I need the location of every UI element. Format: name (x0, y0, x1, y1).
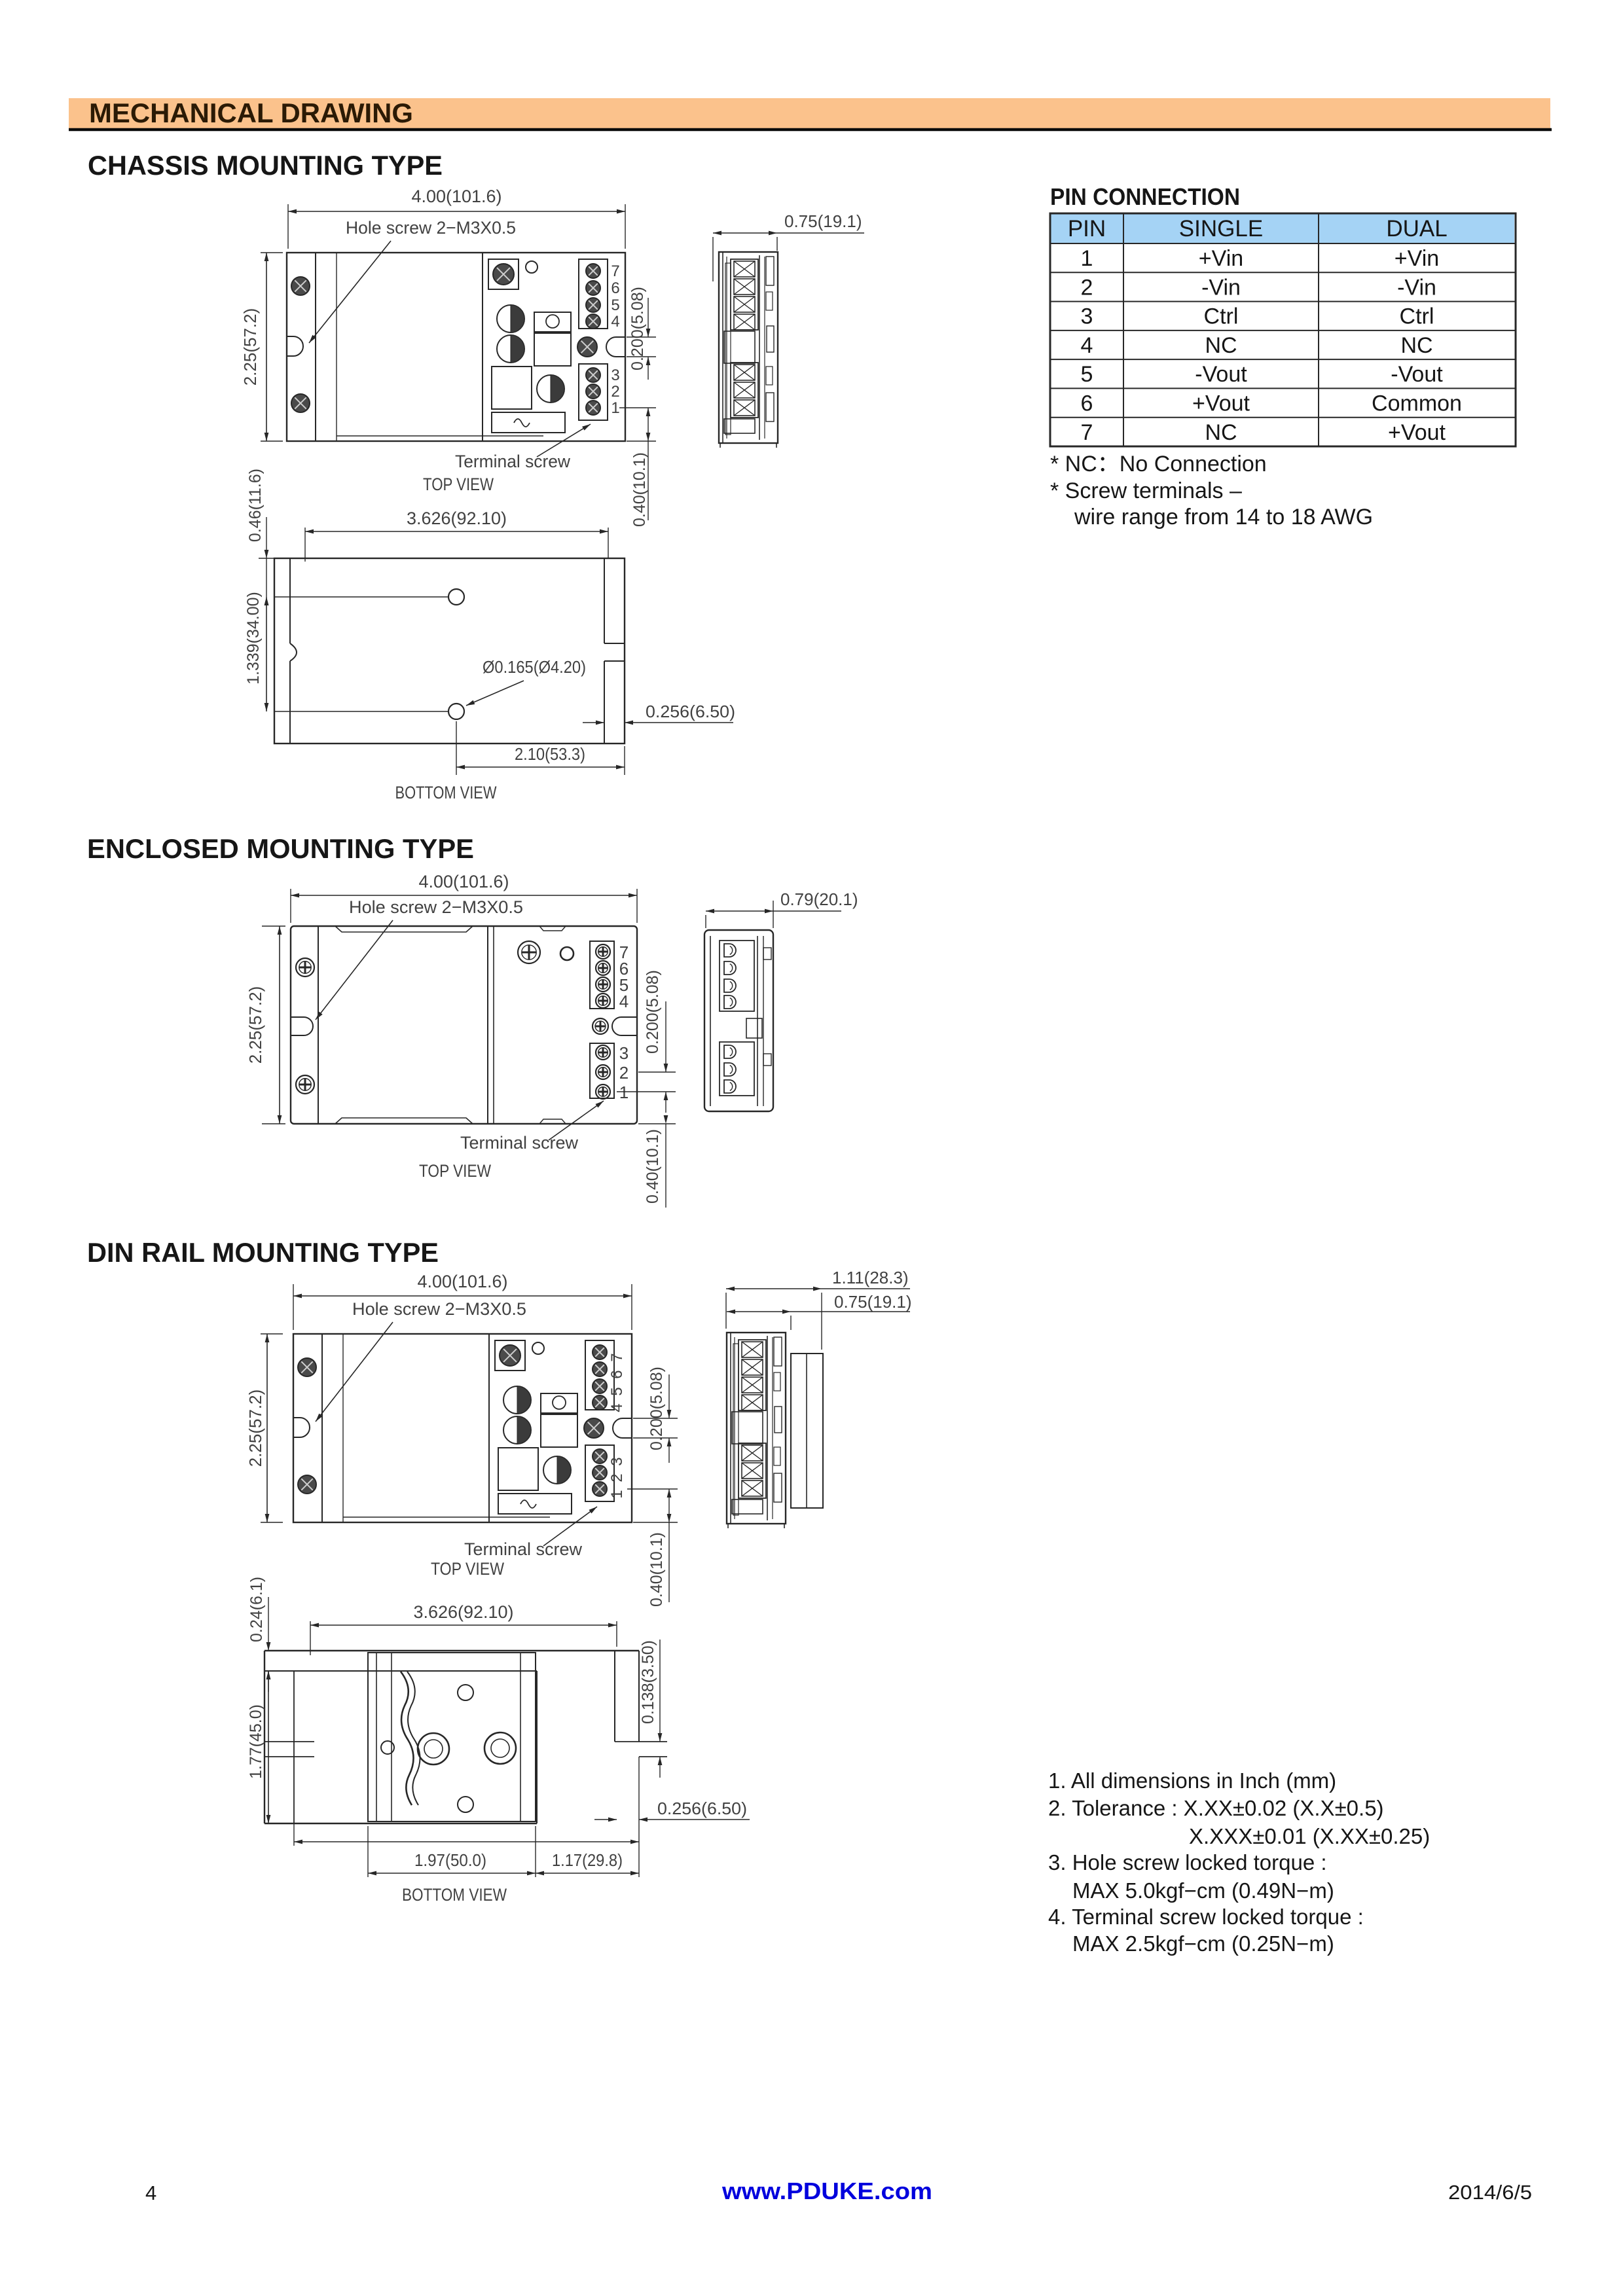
svg-text:0.40(10.1): 0.40(10.1) (630, 452, 649, 527)
svg-text:1.77(45.0): 1.77(45.0) (247, 1704, 265, 1779)
svg-text:1.17(29.8): 1.17(29.8) (552, 1850, 623, 1870)
svg-text:NC: NC (1205, 333, 1237, 358)
svg-text:-Vout: -Vout (1195, 362, 1247, 387)
svg-text:3. Hole screw locked torque :: 3. Hole screw locked torque : (1048, 1850, 1327, 1874)
svg-text:* NC：No Connection: * NC：No Connection (1050, 452, 1267, 476)
svg-text:3.626(92.10): 3.626(92.10) (407, 509, 507, 528)
svg-text:+Vin: +Vin (1199, 246, 1243, 271)
svg-text:3: 3 (608, 1457, 626, 1465)
svg-text:Common: Common (1372, 391, 1462, 416)
svg-text:3.626(92.10): 3.626(92.10) (413, 1602, 513, 1622)
svg-text:X.XXX±0.01 (X.XX±0.25): X.XXX±0.01 (X.XX±0.25) (1189, 1824, 1430, 1848)
svg-text:-Vin: -Vin (1201, 275, 1241, 300)
svg-text:4. Terminal screw locked torqu: 4. Terminal screw locked torque : (1048, 1905, 1364, 1929)
svg-text:1.97(50.0): 1.97(50.0) (414, 1850, 486, 1870)
svg-text:0.138(3.50): 0.138(3.50) (639, 1640, 657, 1724)
svg-text:Hole screw 2−M3X0.5: Hole screw 2−M3X0.5 (349, 897, 523, 917)
svg-text:+Vin: +Vin (1395, 246, 1439, 271)
svg-text:0.40(10.1): 0.40(10.1) (647, 1532, 666, 1607)
svg-text:* Screw terminals –: * Screw terminals – (1050, 478, 1242, 503)
svg-text:1. All dimensions in Inch (mm): 1. All dimensions in Inch (mm) (1048, 1768, 1336, 1793)
svg-text:MAX 2.5kgf−cm (0.25N−m): MAX 2.5kgf−cm (0.25N−m) (1072, 1931, 1334, 1956)
svg-text:2: 2 (611, 383, 619, 401)
svg-text:Ctrl: Ctrl (1204, 304, 1239, 329)
svg-text:-Vout: -Vout (1391, 362, 1443, 387)
svg-text:2: 2 (619, 1063, 629, 1083)
svg-text:0.75(19.1): 0.75(19.1) (784, 211, 862, 231)
svg-text:2014/6/5: 2014/6/5 (1448, 2181, 1532, 2204)
svg-text:4.00(101.6): 4.00(101.6) (417, 1272, 507, 1291)
svg-text:0.256(6.50): 0.256(6.50) (646, 702, 735, 721)
svg-text:0.75(19.1): 0.75(19.1) (834, 1292, 912, 1312)
svg-text:SINGLE: SINGLE (1179, 216, 1263, 242)
svg-text:2: 2 (608, 1473, 626, 1482)
svg-text:1: 1 (608, 1490, 626, 1498)
svg-text:5: 5 (608, 1387, 626, 1395)
svg-text:www.PDUKE.com: www.PDUKE.com (721, 2178, 932, 2204)
svg-text:MECHANICAL DRAWING: MECHANICAL DRAWING (89, 98, 413, 128)
svg-text:4: 4 (619, 992, 629, 1011)
svg-text:TOP VIEW: TOP VIEW (423, 475, 494, 494)
svg-text:Terminal screw: Terminal screw (464, 1539, 582, 1559)
svg-text:ENCLOSED MOUNTING TYPE: ENCLOSED MOUNTING TYPE (87, 833, 474, 864)
svg-text:0.200(5.08): 0.200(5.08) (647, 1367, 666, 1450)
svg-text:2.10(53.3): 2.10(53.3) (515, 744, 585, 764)
svg-text:DIN RAIL MOUNTING TYPE: DIN RAIL MOUNTING TYPE (87, 1237, 439, 1268)
svg-text:7: 7 (611, 262, 619, 280)
svg-text:BOTTOM VIEW: BOTTOM VIEW (395, 783, 497, 802)
svg-text:0.200(5.08): 0.200(5.08) (629, 287, 647, 370)
svg-text:BOTTOM VIEW: BOTTOM VIEW (402, 1885, 507, 1905)
svg-text:Ctrl: Ctrl (1400, 304, 1434, 329)
svg-text:7: 7 (1081, 420, 1093, 445)
svg-text:0.79(20.1): 0.79(20.1) (780, 889, 858, 909)
svg-text:6: 6 (1081, 391, 1093, 416)
svg-text:TOP VIEW: TOP VIEW (419, 1161, 491, 1181)
svg-text:MAX 5.0kgf−cm (0.49N−m): MAX 5.0kgf−cm (0.49N−m) (1072, 1878, 1334, 1903)
svg-text:Ø0.165(Ø4.20): Ø0.165(Ø4.20) (483, 657, 586, 677)
svg-text:4: 4 (608, 1403, 626, 1412)
svg-text:3: 3 (1081, 304, 1093, 329)
svg-text:wire range from 14 to 18 AWG: wire range from 14 to 18 AWG (1074, 505, 1373, 529)
svg-text:1.339(34.00): 1.339(34.00) (244, 592, 263, 685)
svg-text:4.00(101.6): 4.00(101.6) (418, 872, 509, 891)
svg-text:0.46(11.6): 0.46(11.6) (246, 469, 264, 542)
svg-text:Hole screw 2−M3X0.5: Hole screw 2−M3X0.5 (346, 218, 516, 238)
svg-text:5: 5 (1081, 362, 1093, 387)
svg-text:6: 6 (611, 279, 619, 297)
svg-text:1: 1 (1081, 246, 1093, 271)
svg-text:4: 4 (145, 2181, 156, 2204)
svg-text:NC: NC (1400, 333, 1432, 358)
svg-text:DUAL: DUAL (1386, 216, 1447, 242)
svg-text:4.00(101.6): 4.00(101.6) (411, 187, 501, 206)
svg-text:7: 7 (608, 1353, 626, 1361)
svg-text:0.200(5.08): 0.200(5.08) (644, 970, 662, 1054)
svg-text:TOP VIEW: TOP VIEW (431, 1559, 504, 1579)
svg-text:+Vout: +Vout (1388, 420, 1446, 445)
svg-text:6: 6 (608, 1370, 626, 1378)
svg-text:1.11(28.3): 1.11(28.3) (832, 1268, 909, 1287)
svg-text:4: 4 (611, 313, 619, 331)
svg-text:Terminal screw: Terminal screw (455, 452, 570, 471)
svg-text:0.256(6.50): 0.256(6.50) (657, 1799, 747, 1818)
svg-text:Hole screw 2−M3X0.5: Hole screw 2−M3X0.5 (352, 1299, 526, 1319)
svg-text:PIN CONNECTION: PIN CONNECTION (1050, 183, 1240, 210)
svg-text:2. Tolerance : X.XX±0.02 (X.X±: 2. Tolerance : X.XX±0.02 (X.X±0.5) (1048, 1796, 1384, 1820)
svg-text:Terminal screw: Terminal screw (460, 1133, 578, 1153)
svg-text:2.25(57.2): 2.25(57.2) (246, 1390, 265, 1467)
svg-text:5: 5 (611, 296, 619, 314)
svg-text:NC: NC (1205, 420, 1237, 445)
svg-text:3: 3 (619, 1043, 629, 1063)
svg-text:2.25(57.2): 2.25(57.2) (240, 308, 260, 386)
svg-text:PIN: PIN (1068, 216, 1106, 242)
svg-text:CHASSIS MOUNTING TYPE: CHASSIS MOUNTING TYPE (88, 150, 443, 181)
svg-text:+Vout: +Vout (1192, 391, 1250, 416)
svg-text:0.24(6.1): 0.24(6.1) (247, 1577, 266, 1642)
svg-text:1: 1 (619, 1083, 629, 1102)
svg-text:1: 1 (611, 399, 619, 417)
svg-text:-Vin: -Vin (1397, 275, 1436, 300)
svg-text:0.40(10.1): 0.40(10.1) (644, 1129, 662, 1204)
svg-text:2.25(57.2): 2.25(57.2) (246, 986, 265, 1064)
svg-text:2: 2 (1081, 275, 1093, 300)
svg-text:3: 3 (611, 367, 619, 384)
svg-text:4: 4 (1081, 333, 1093, 358)
